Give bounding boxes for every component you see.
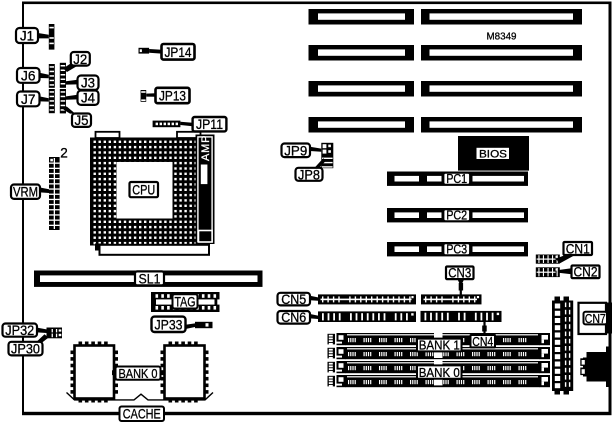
- svg-text:J1: J1: [20, 28, 34, 44]
- svg-text:JP32: JP32: [5, 322, 34, 338]
- svg-text:J5: J5: [75, 112, 89, 128]
- svg-text:BANK 0: BANK 0: [119, 366, 158, 381]
- svg-text:J4: J4: [81, 90, 95, 106]
- svg-text:CN4: CN4: [472, 334, 493, 349]
- svg-text:CN7: CN7: [585, 311, 606, 326]
- svg-text:AMP: AMP: [200, 135, 212, 161]
- svg-text:JP11: JP11: [196, 116, 223, 132]
- svg-text:PC1: PC1: [446, 171, 467, 186]
- svg-text:CPU: CPU: [132, 183, 155, 198]
- svg-text:J6: J6: [21, 67, 36, 83]
- svg-text:CN5: CN5: [281, 292, 306, 307]
- svg-text:JP9: JP9: [284, 142, 307, 158]
- svg-text:VRM: VRM: [13, 185, 38, 200]
- svg-text:BIOS: BIOS: [479, 148, 507, 160]
- svg-text:JP30: JP30: [11, 341, 40, 357]
- svg-text:TAG: TAG: [175, 294, 196, 309]
- svg-text:J3: J3: [81, 75, 95, 91]
- svg-text:2: 2: [60, 146, 68, 161]
- svg-text:M8349: M8349: [487, 30, 517, 42]
- svg-text:CN1: CN1: [566, 241, 590, 256]
- svg-text:JP13: JP13: [159, 88, 186, 104]
- svg-text:J2: J2: [73, 51, 87, 67]
- svg-text:CACHE: CACHE: [123, 407, 161, 422]
- svg-text:CN2: CN2: [574, 265, 598, 280]
- svg-text:JP8: JP8: [298, 166, 320, 182]
- svg-text:JP14: JP14: [165, 44, 192, 60]
- svg-text:J7: J7: [21, 91, 36, 107]
- svg-text:CN3: CN3: [448, 266, 471, 281]
- svg-text:PC2: PC2: [446, 207, 467, 222]
- svg-text:PC3: PC3: [446, 241, 467, 256]
- svg-text:BANK 1: BANK 1: [419, 338, 460, 353]
- svg-text:SL1: SL1: [139, 271, 161, 286]
- svg-text:CN6: CN6: [281, 310, 306, 325]
- svg-text:BANK 0: BANK 0: [419, 365, 460, 380]
- svg-text:JP33: JP33: [155, 316, 183, 332]
